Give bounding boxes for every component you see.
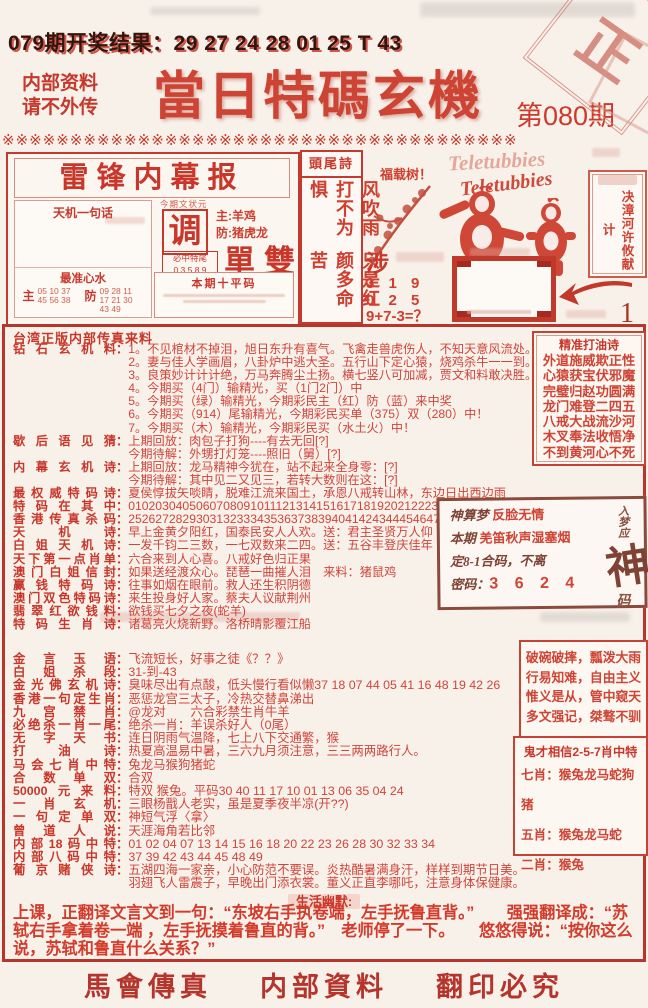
tip-row-text: 如果送经渡众心。琵琶一曲摧人泪 来料：猪鼠鸡 [128, 566, 396, 579]
side-riddle-box: 决漳河许攸献计 [588, 170, 647, 278]
tip-row-lines: 如果送经渡众心。琵琶一曲摧人泪 来料：猪鼠鸡 [128, 566, 396, 579]
tip-row-text: 欲钱买七夕之夜(蛇羊) [128, 605, 246, 618]
tip-row-lines: 热夏高温易中暑，三六九月须注意，三三两两路行人。 [128, 745, 425, 758]
tip-row-lines: 诸葛亮火烧新野。洛桥晴影覆江船 [128, 618, 311, 631]
illegible-note [396, 252, 444, 262]
dream-code-label: 密码： [450, 577, 489, 592]
zodiac-picks-line: 五肖：猴兔龙马蛇 [521, 820, 646, 850]
tip-row-text: 来生投身好人家。蔡夫人议献荆州 [128, 592, 311, 605]
tip-row-text: 上期回放：龙马精神今犹在，站不起来全身零：[?] [128, 461, 398, 474]
leifeng-report-box: 雷锋内幕报 天机一句话 最准心水 主 05 10 37 45 56 38 防 0… [6, 152, 300, 326]
dream-side-banner: 入梦应 神 码 [605, 501, 640, 610]
idiom-line: 多文强记，桀骜不驯 [521, 707, 646, 727]
doggerel-poem-title: 精准打油诗 [534, 336, 644, 353]
fax-sheet-page: 079期开奖结果：29 27 24 28 01 25 T 43 内部资料 请不外… [0, 0, 648, 1008]
hint-character: 涉 [366, 244, 389, 278]
confidential-line1: 内部资料 [22, 72, 98, 96]
tip-row: 特码生肖诗： 诸葛亮火烧新野。洛桥晴影覆江船 [13, 618, 529, 631]
label-colon: ： [116, 811, 128, 824]
illegible-note [598, 175, 637, 185]
tip-row: 香港一句定生肖： 恶惩龙宫三太子，冷热交替鼻涕出 [13, 693, 518, 706]
doggerel-poem-line: 不到黄河心不死 [534, 445, 644, 460]
label-colon: ： [116, 759, 128, 772]
tip-row-text: 上期回放：肉包子打狗----有去无回[?] [128, 435, 341, 448]
tip-row-label: 歇后语见猜 [13, 435, 116, 448]
label-colon: ： [116, 592, 128, 605]
label-colon: ： [116, 435, 128, 448]
tip-row-lines: 一发千钧二三数，一七双数来二四。送：五谷丰登庆佳年 [128, 539, 433, 552]
zhu-line: 主:羊鸡 [216, 208, 268, 225]
doggerel-poem-box: 精准打油诗 外道施威欺正性心猿获宝伏邪魔完璧归赵功圆满龙门难登二四五八戒大战流沙… [532, 331, 646, 466]
zhu-label: 主 [22, 287, 34, 314]
dream-value: 羌笛秋声湿塞烟 [479, 530, 570, 546]
tip-row-label: 香港一句定生肖 [13, 693, 116, 706]
label-colon: ： [116, 864, 128, 877]
tip-row-text: 往事如烟在眼前。救人还生积阴德 [128, 579, 311, 592]
one-char-panel: 今期文状元 调 主:羊鸡 防:猪虎龙 單雙 必中特尾 0 3 5 8 9 [154, 200, 292, 270]
tip-row-lines: 六合来到人心喜。八戒好色归正果 [128, 553, 311, 566]
tip-row-lines: 上期回放：龙马精神今犹在，站不起来全身零：[?]今期待解：其中见二又见三，若转大… [128, 461, 398, 487]
tip-row-label: 打油诗 [13, 745, 116, 758]
dream-value: 反脸无情 [492, 507, 544, 523]
label-colon: ： [116, 679, 128, 692]
tip-row-lines: 欲钱买七夕之夜(蛇羊) [128, 605, 246, 618]
tip-row-label: 钻石玄机料 [13, 343, 116, 356]
tip-row-text: 一发千钧二三数，一七双数来二四。送：五谷丰登庆佳年 [128, 539, 433, 552]
label-colon: ： [116, 693, 128, 706]
humor-story: 上课，正翻译文言文到一句：“东坡右手执卷端，左手抚鲁直背。” 强强翻译成：“苏轼… [13, 904, 635, 959]
label-colon: ： [116, 343, 128, 356]
footer-banner: 馬會傳真内部資料翻印必究 [0, 965, 648, 1004]
tip-row: 歇后语见猜： 上期回放：肉包子打狗----有去无回[?]今期待解：外甥打灯笼--… [13, 435, 529, 461]
tip-row-label: 马会七肖中特 [13, 759, 116, 772]
tip-row: 一句定单双： 神短气浮〈拿〉 [13, 811, 518, 824]
tip-row-label: 曾道人说 [13, 825, 116, 838]
doggerel-poem-lines: 外道施威欺正性心猿获宝伏邪魔完璧归赵功圆满龙门难登二四五八戒大战流沙河木叉奉法收… [534, 353, 644, 460]
hint-numbers: 3 1 90 2 59+7-3=？ [366, 276, 429, 326]
leifeng-title: 雷锋内幕报 [14, 158, 290, 198]
tip-row-label: 葡京赌侠诗 [13, 864, 116, 877]
zuixin-label: 最准心水 [15, 270, 151, 286]
footer-phrase: 内部資料 [260, 972, 388, 1002]
label-colon: ： [116, 618, 128, 631]
tip-row-lines: 恶惩龙宫三太子，冷热交替鼻涕出 [128, 693, 314, 706]
tip-row-text: 臭味尽出有点酸，低头慢行看似懒37 18 07 44 05 41 16 48 1… [128, 679, 500, 692]
lower-tips-rows: 金言玉语： 飞流短长，好事之徒《？？》 白姐杀段： 31-到-43 金光佛玄机诗… [13, 653, 518, 891]
tip-row: 打油诗： 热夏高温易中暑，三六九月须注意，三三两两路行人。 [13, 745, 518, 758]
doggerel-poem-line: 外道施威欺正性 [534, 353, 644, 368]
tip-row-label: 特码生肖诗 [13, 618, 116, 631]
tip-row-label: 金光佛玄机诗 [13, 679, 116, 692]
tip-row-lines: 来生投身好人家。蔡夫人议献荆州 [128, 592, 311, 605]
tip-row-text: 天涯海角若比邻 [128, 825, 215, 838]
dream-oracle-box: 神算梦 反脸无情 本期 羌笛秋声湿塞烟 定8-1合码，不离 密码：3 6 2 4… [436, 496, 647, 610]
doggerel-poem-line: 龙门难登二四五 [534, 399, 644, 414]
tip-row-label: 澳门白姐信封 [13, 566, 116, 579]
tip-row-text: 六合来到人心喜。八戒好色归正果 [128, 553, 311, 566]
zuixin-panel: 最准心水 主 05 10 37 45 56 38 防 09 28 11 17 2… [15, 267, 151, 317]
dream-label: 本期 [450, 531, 476, 546]
tip-row-label: 翡翠红欲钱料 [13, 605, 116, 618]
tip-row-lines: 臭味尽出有点酸，低头慢行看似懒37 18 07 44 05 41 16 48 1… [128, 679, 500, 692]
zodiac-picks-line: 七肖：猴兔龙马蛇狗猪 [521, 760, 646, 820]
zodiac-picks-title: 鬼才相信2-5-7肖中特 [515, 742, 646, 760]
tip-row-label: 内幕玄机诗 [13, 461, 116, 474]
idiom-box: 破碗破摔，瓢泼大雨行易知难，自由主义惟义是从，管中窥天多文强记，桀骜不驯 [519, 640, 648, 743]
tip-row-text: 今期待解：外甥打灯笼----照旧（舅）[?] [128, 448, 341, 461]
tip-row-text: 7。今期买（木）输精光，今期彩民买（水土火）中！ [128, 422, 567, 435]
label-colon: ： [116, 566, 128, 579]
illegible-note [163, 294, 285, 297]
tip-row-text: 热夏高温易中暑，三六九月须注意，三三两两路行人。 [128, 745, 425, 758]
hint-number-line: 0 2 5 [366, 293, 429, 310]
label-colon: ： [116, 579, 128, 592]
tip-row: 内幕玄机诗： 上期回放：龙马精神今犹在，站不起来全身零：[?]今期待解：其中见二… [13, 461, 529, 487]
one-char-box: 调 [162, 209, 208, 255]
tip-row-label: 一句定单双 [13, 811, 116, 824]
pingma-box: 本期十平码 [154, 272, 294, 318]
tip-row-label: 天下第一点肖单 [13, 553, 116, 566]
zodiac-picks-lines: 七肖：猴兔龙马蛇狗猪五肖：猴兔龙马蛇二肖：猴兔 [515, 760, 646, 880]
footer-phrase: 翻印必究 [436, 972, 564, 1002]
label-colon: ： [116, 539, 128, 552]
doggerel-poem-line: 木叉奉法收悟净 [534, 429, 644, 444]
tip-row-lines: 上期回放：肉包子打狗----有去无回[?]今期待解：外甥打灯笼----照旧（舅）… [128, 435, 341, 461]
tianji-panel: 天机一句话 最准心水 主 05 10 37 45 56 38 防 09 28 1… [14, 200, 152, 318]
doggerel-poem-line: 八戒大战流沙河 [534, 414, 644, 429]
dream-code: 3 6 2 4 [489, 575, 580, 593]
label-colon: ： [116, 745, 128, 758]
confidential-line2: 请不外传 [22, 96, 98, 120]
tip-row-lines: 往事如烟在眼前。救人还生积阴德 [128, 579, 311, 592]
side-riddle-text: 决漳河许攸献计 [599, 187, 637, 273]
illegible-note [470, 248, 530, 256]
idiom-line: 破碗破摔，瓢泼大雨 [521, 648, 646, 668]
confidential-note: 内部资料 请不外传 [22, 72, 98, 120]
head-tail-poem-box: 頭尾詩 风吹雨打不为惧 只是红颜多命苦 [300, 150, 363, 324]
footer-phrase: 馬會傳真 [84, 972, 212, 1002]
illegible-note [183, 300, 266, 303]
tip-row-lines: 1。不见棺材不掉泪，旭日东升有喜气。飞禽走兽虎伤人，不知天意风流处。（俱）2。妻… [128, 343, 567, 435]
label-colon: ： [116, 825, 128, 838]
dream-side-top: 入梦应 [614, 501, 630, 541]
illegible-note [592, 148, 620, 157]
zodiac-picks-line: 二肖：猴兔 [521, 850, 646, 880]
zuixin-numbers: 主 05 10 37 45 56 38 防 09 28 11 17 21 30 … [15, 286, 151, 317]
zodiac-picks-box: 鬼才相信2-5-7肖中特 七肖：猴兔龙马蛇狗猪五肖：猴兔龙马蛇二肖：猴兔 [513, 736, 648, 856]
label-colon: ： [116, 553, 128, 566]
tip-row: 钻石玄机料： 1。不见棺材不掉泪，旭日东升有喜气。飞禽走兽虎伤人，不知天意风流处… [13, 343, 529, 435]
head-tail-poem-title: 頭尾詩 [302, 152, 361, 178]
tip-row-label: 赢钱特码诗 [13, 579, 116, 592]
tip-row-label: 澳门双色特码诗 [13, 592, 116, 605]
tip-row-lines: 神短气浮〈拿〉 [128, 811, 215, 824]
tip-row: 葡京赌侠诗： 五湖四海一家亲，小心防范不要误。炎热酷暑满身汗，样样到期节日美。羽… [13, 864, 518, 890]
idiom-line: 行易知难，自由主义 [521, 668, 646, 688]
label-colon: ： [116, 605, 128, 618]
tip-row-text: 神短气浮〈拿〉 [128, 811, 215, 824]
doggerel-poem-line: 完璧归赵功圆满 [534, 384, 644, 399]
tip-row-label: 白姐天机诗 [13, 539, 116, 552]
illegible-note [467, 310, 531, 314]
tip-row: 曾道人说： 天涯海角若比邻 [13, 825, 518, 838]
label-colon: ： [116, 461, 128, 474]
scan-artifact [150, 7, 260, 15]
tip-row-text: 羽翅飞人雷震子，早晚出门添衣裳。董义正直李哪吒，注意身体保健康。 [128, 877, 525, 890]
illegible-note [566, 310, 606, 318]
pingma-label: 本期十平码 [155, 275, 293, 291]
previous-draw-result: 079期开奖结果：29 27 24 28 01 25 T 43 [8, 27, 402, 57]
dream-rule: 定8-1合码，不离 [450, 553, 545, 569]
separator-row: ※※※※※※※※※※※※※※※※※※※※※※※※※※※※※※※※※※※※※※ [2, 131, 646, 149]
tip-row-lines: 兔龙马猴狗猪蛇 [128, 759, 215, 772]
tip-row: 马会七肖中特： 兔龙马猴狗猪蛇 [13, 759, 518, 772]
dream-side-big-character: 神 [603, 544, 643, 593]
tip-row-text: 恶惩龙宫三太子，冷热交替鼻涕出 [128, 693, 314, 706]
page-title: 當日特碼玄機 [108, 54, 528, 129]
fang-numbers: 09 28 11 17 21 30 43 49 [100, 287, 144, 314]
illegible-note [105, 217, 145, 224]
idiom-line: 惟义是从，管中窥天 [521, 687, 646, 707]
empty-answer-frame [452, 256, 556, 322]
zhu-numbers: 05 10 37 45 56 38 [38, 287, 82, 314]
tail-pick-label: 必中特尾 [163, 252, 217, 264]
tip-row-lines: 五湖四海一家亲，小心防范不要误。炎热酷暑满身汗，样样到期节日美。羽翅飞人雷震子，… [128, 864, 525, 890]
tip-row-lines: 天涯海角若比邻 [128, 825, 215, 838]
tip-row: 金光佛玄机诗： 臭味尽出有点酸，低头慢行看似懒37 18 07 44 05 41… [13, 679, 518, 692]
tip-row-text: 兔龙马猴狗猪蛇 [128, 759, 215, 772]
tip-row-text: 6。今期买（914）尾输精光，今期彩民买单（375）双（280）中！ [128, 408, 567, 421]
fang-label: 防 [85, 287, 97, 314]
dream-label: 神算梦 [450, 508, 489, 523]
doggerel-poem-line: 心猿获宝伏邪魔 [534, 368, 644, 383]
tip-row-text: 诸葛亮火烧新野。洛桥晴影覆江船 [128, 618, 311, 631]
hint-number-line: 3 1 9 [366, 276, 429, 293]
